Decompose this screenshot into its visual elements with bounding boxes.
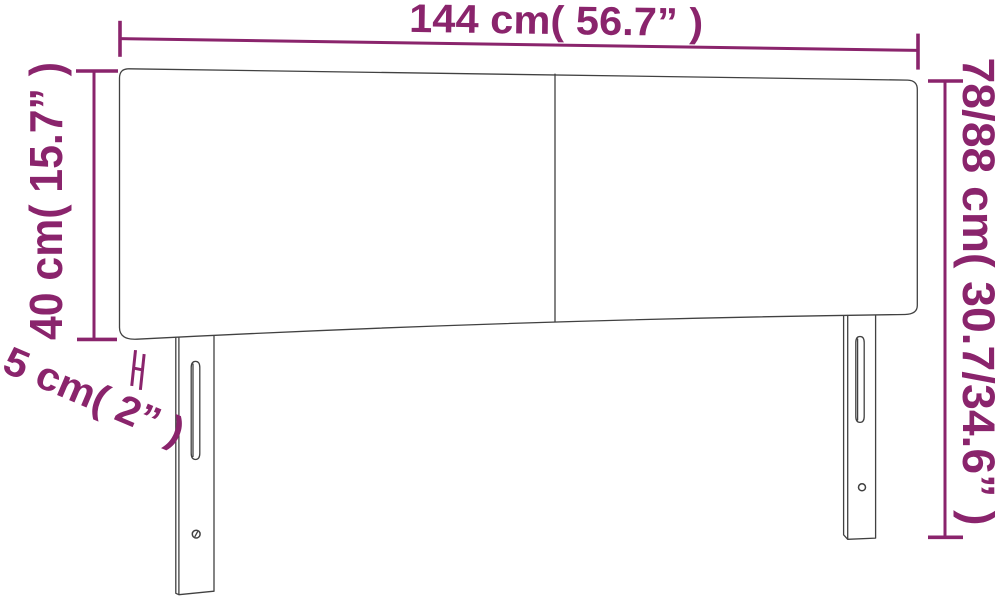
svg-text:144 cm( 56.7” ): 144 cm( 56.7” )	[409, 0, 704, 45]
svg-text:40 cm( 15.7” ): 40 cm( 15.7” )	[20, 62, 72, 340]
svg-text:78/88 cm( 30.7/34.6” ): 78/88 cm( 30.7/34.6” )	[953, 58, 995, 526]
svg-text:5 cm( 2” ): 5 cm( 2” )	[0, 339, 191, 455]
